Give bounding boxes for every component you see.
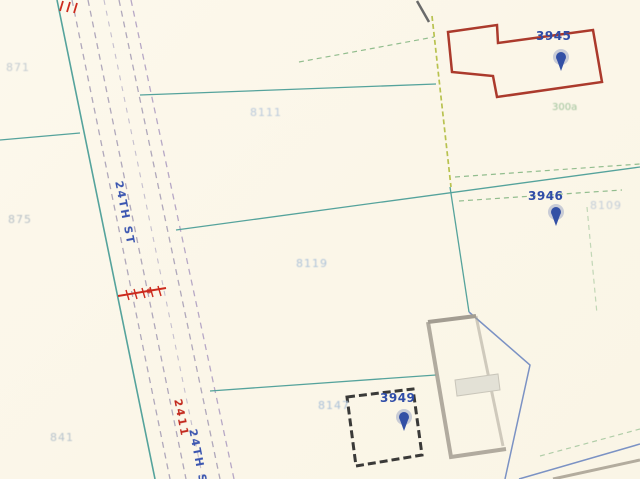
road-corridor	[57, 0, 234, 479]
point-number-label: 3949	[380, 392, 415, 404]
parcel-boundary-line	[450, 187, 469, 312]
parcel-number-label: 841	[50, 432, 74, 443]
parcel-number-label: 8119	[296, 258, 328, 269]
point-number-label: 3945	[536, 30, 571, 42]
map-viewport[interactable]: 8111 8119 875 871 841 8147 8109 3945 394…	[0, 0, 640, 479]
zoning-dashed-line	[587, 207, 597, 314]
parcel-boundary-line	[176, 167, 640, 230]
structure-edge-gray	[417, 1, 429, 22]
map-pin-icon[interactable]	[553, 49, 569, 71]
point-number-label: 3946	[528, 190, 563, 202]
map-pin-icon[interactable]	[396, 409, 412, 431]
zoning-dashed-line	[299, 37, 434, 62]
parcel-number-label: 871	[6, 62, 30, 73]
zoning-label: 300a	[552, 103, 577, 113]
map-pin-icon[interactable]	[548, 204, 564, 226]
building-outline-red[interactable]	[448, 25, 602, 97]
road-edge-line	[57, 0, 155, 479]
culvert-hatch-red	[118, 286, 166, 300]
zoning-dashed-line	[540, 429, 640, 456]
road-edge-line	[553, 460, 640, 479]
parcel-boundaries	[0, 84, 640, 391]
map-pins	[396, 49, 569, 431]
building-outline-gray[interactable]	[428, 316, 506, 457]
zoning-dashed-lines	[299, 37, 640, 314]
parcel-number-label: 8147	[318, 400, 350, 411]
parcel-boundary-line	[140, 84, 436, 95]
parcel-number-label: 8109	[590, 200, 622, 211]
parcel-number-label: 875	[8, 214, 32, 225]
parcel-boundary-line	[0, 133, 80, 140]
road-dashed-line	[104, 0, 203, 479]
parcel-number-label: 8111	[250, 107, 282, 118]
road-dashed-line	[88, 0, 186, 479]
road-dashed-line	[72, 0, 170, 479]
survey-ticks-red	[60, 1, 77, 13]
parcel-boundaries-blue	[469, 312, 640, 479]
parcel-boundary-line	[210, 375, 436, 391]
